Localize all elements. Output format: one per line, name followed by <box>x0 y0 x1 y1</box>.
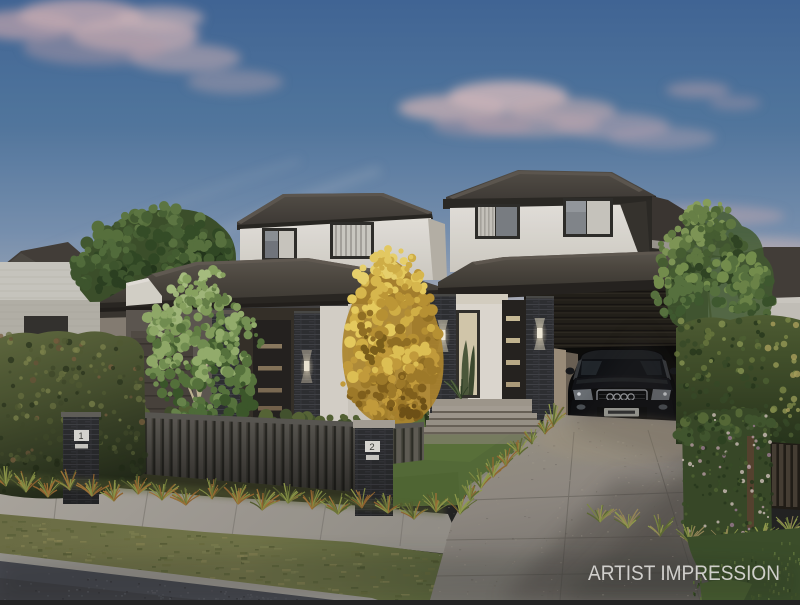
svg-text:1: 1 <box>78 431 83 441</box>
svg-text:ARTIST IMPRESSION: ARTIST IMPRESSION <box>588 562 780 585</box>
svg-text:2: 2 <box>369 442 374 453</box>
